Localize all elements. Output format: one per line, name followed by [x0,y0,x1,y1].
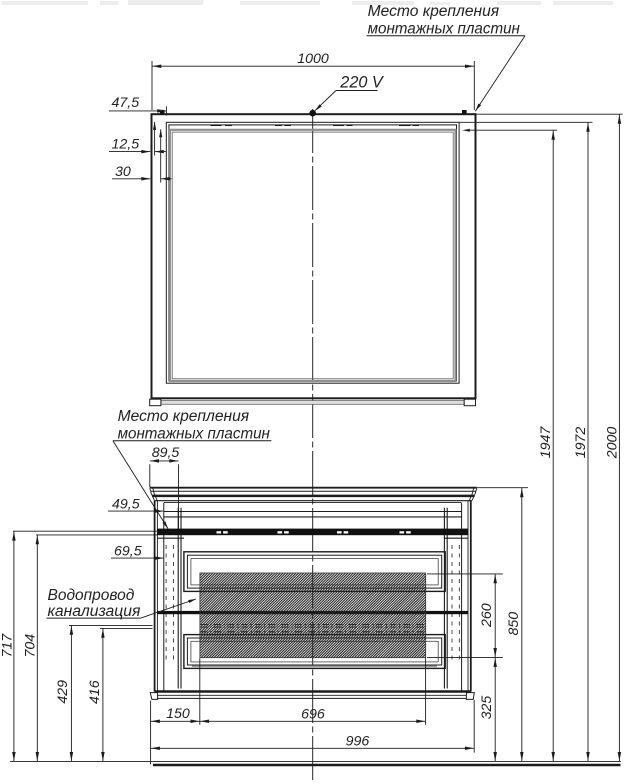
svg-text:30: 30 [115,164,131,180]
svg-text:416: 416 [87,680,103,704]
svg-text:2000: 2000 [605,427,621,460]
svg-text:717: 717 [0,633,16,658]
svg-text:монтажных пластин: монтажных пластин [368,21,521,38]
svg-text:Место крепления: Место крепления [118,408,250,425]
svg-text:89,5: 89,5 [152,445,180,461]
svg-text:1947: 1947 [538,426,554,459]
svg-text:704: 704 [22,634,38,658]
svg-text:Водопровод: Водопровод [48,587,135,604]
svg-text:220 V: 220 V [339,74,385,92]
svg-text:монтажных пластин: монтажных пластин [118,426,271,443]
svg-text:150: 150 [166,706,190,722]
svg-text:канализация: канализация [48,603,141,620]
svg-text:325: 325 [479,696,495,720]
svg-text:429: 429 [55,680,71,704]
svg-text:260: 260 [479,603,495,628]
svg-text:49,5: 49,5 [112,497,140,513]
svg-text:12,5: 12,5 [112,137,140,153]
svg-text:Место крепления: Место крепления [368,3,500,20]
svg-text:996: 996 [346,734,370,750]
svg-text:696: 696 [301,706,325,722]
svg-text:47,5: 47,5 [112,95,140,111]
svg-text:1972: 1972 [573,427,589,459]
svg-text:69,5: 69,5 [114,544,142,560]
svg-text:1000: 1000 [297,51,329,67]
svg-text:850: 850 [506,612,522,636]
